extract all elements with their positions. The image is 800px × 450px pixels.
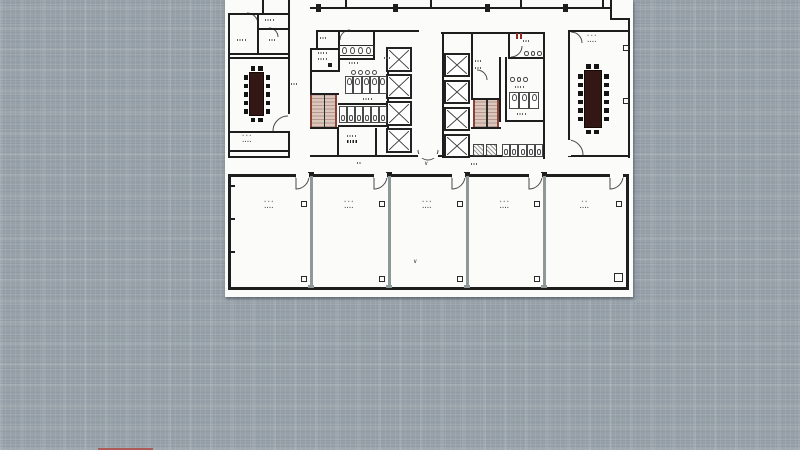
squat-fixture [357, 115, 361, 121]
door-opening [610, 173, 623, 178]
partition-wall [466, 176, 469, 288]
urinal [366, 47, 371, 54]
conference-table [249, 72, 264, 116]
elevator-x-icon [447, 137, 467, 155]
wall [610, 18, 630, 20]
partition-wall [388, 176, 391, 288]
elevator-x-icon [389, 50, 409, 69]
door-opening [418, 154, 438, 158]
wall [505, 120, 545, 122]
wall [393, 4, 398, 12]
chair [266, 92, 271, 97]
wall [262, 0, 264, 13]
column-mark [534, 276, 540, 282]
wall [316, 30, 419, 32]
door-opening [296, 173, 309, 178]
wall [568, 155, 630, 157]
door-opening [568, 140, 571, 156]
wall [228, 53, 290, 55]
wall [520, 0, 522, 8]
wall [316, 30, 318, 50]
annotation-text [320, 37, 327, 39]
chair [586, 64, 591, 69]
toilet [522, 94, 527, 101]
desktop-background: ∙∙∙ ∙∙∙∙ ∙∙∙ ∙∙∙∙ ∨ ∨ ∙∙∙∙∙∙∙∙∙∙∙∙∙∙∙∙∙∙… [0, 0, 800, 450]
column-mark [623, 98, 629, 104]
chair [578, 108, 583, 113]
shaft [473, 144, 484, 156]
elevator-shaft [386, 101, 412, 126]
chair [604, 74, 609, 79]
squat-fixture [373, 115, 377, 121]
shaft [486, 144, 497, 156]
room-label: ∙∙∙∙ [332, 206, 366, 212]
chair [578, 100, 583, 105]
annotation-text [515, 86, 524, 88]
wall [228, 287, 628, 290]
annotation-text [269, 39, 276, 41]
column-mark [457, 201, 463, 207]
squat-fixture [381, 115, 385, 121]
elevator-shaft [444, 107, 470, 131]
room-label: ∙∙∙∙ [230, 140, 264, 145]
column-mark [386, 285, 392, 288]
toilet [347, 78, 352, 85]
wall [485, 4, 490, 12]
wall [543, 32, 545, 159]
wall [508, 57, 545, 59]
chair [604, 91, 609, 96]
direction-mark: ∨ [424, 161, 428, 167]
sink [358, 70, 363, 75]
toilet [532, 94, 537, 101]
wall [626, 174, 629, 290]
toilet [355, 78, 360, 85]
wall [257, 13, 259, 55]
wall [228, 218, 235, 220]
elevator-x-icon [447, 56, 467, 74]
chair [244, 92, 249, 97]
elevator-x-icon [389, 104, 409, 123]
chair [258, 66, 263, 71]
chair [604, 117, 609, 122]
room-label: ∙∙∙∙ [568, 206, 602, 212]
wall [338, 58, 375, 60]
wall [228, 131, 288, 133]
wall [228, 174, 231, 290]
partition-wall [310, 176, 313, 288]
room-label: ∙∙∙∙ [575, 40, 609, 45]
fire-door-mark [516, 33, 518, 39]
elevator-shaft [444, 134, 470, 158]
wall [228, 156, 290, 158]
elevator-x-icon [447, 83, 467, 101]
room-label: ∙∙∙∙ [488, 206, 522, 212]
sink [531, 51, 536, 56]
wall [228, 57, 288, 59]
elevator-x-icon [389, 77, 409, 96]
chair [244, 109, 249, 114]
staircase [310, 95, 337, 127]
chair [578, 117, 583, 122]
column-mark [616, 201, 622, 207]
wall [316, 48, 340, 50]
urinal [350, 47, 355, 54]
column-mark [379, 201, 385, 207]
wall [610, 0, 612, 18]
wall [568, 30, 630, 32]
toilet [512, 94, 517, 101]
urinal [358, 47, 363, 54]
column-mark [308, 285, 314, 288]
sink [524, 51, 529, 56]
sink [523, 77, 528, 82]
chair [604, 100, 609, 105]
door-opening [288, 114, 291, 131]
annotation-text [384, 57, 392, 59]
room-label: ∙∙∙∙ [410, 206, 444, 212]
squat-fixture [504, 149, 508, 155]
toilet [380, 78, 385, 85]
chair [244, 84, 249, 89]
column-mark [301, 276, 307, 282]
chair [251, 66, 256, 71]
wall [338, 125, 389, 127]
annotation-text [265, 19, 274, 21]
wall [602, 0, 604, 7]
column-mark [614, 273, 623, 282]
chair [604, 108, 609, 113]
wall [257, 28, 290, 30]
sink [351, 70, 356, 75]
toilet [364, 78, 369, 85]
elevator-shaft [444, 53, 470, 77]
wall [310, 70, 340, 72]
squat-fixture [365, 115, 369, 121]
chair [266, 84, 271, 89]
annotation-text [237, 39, 247, 41]
door-opening [374, 173, 387, 178]
wall [345, 0, 347, 8]
chair [604, 83, 609, 88]
sink [517, 77, 522, 82]
wall [628, 18, 630, 158]
partition-wall [543, 176, 546, 288]
annotation-text [357, 162, 362, 164]
chair [251, 118, 256, 123]
elevator-shaft [386, 128, 412, 153]
chair [244, 75, 249, 80]
annotation-text [363, 98, 372, 100]
annotation-text [523, 40, 531, 42]
wall [499, 57, 501, 122]
fire-door-mark [520, 33, 522, 39]
elevator-shaft [386, 47, 412, 72]
wall [505, 57, 507, 122]
wall [430, 0, 432, 8]
wall [471, 32, 473, 100]
chair [586, 130, 591, 135]
chair [266, 75, 271, 80]
annotation-text [318, 58, 327, 60]
wall [228, 150, 288, 152]
chair [578, 74, 583, 79]
floor-plan-canvas[interactable]: ∙∙∙ ∙∙∙∙ ∙∙∙ ∙∙∙∙ ∨ ∨ ∙∙∙∙∙∙∙∙∙∙∙∙∙∙∙∙∙∙… [225, 0, 633, 297]
wall [228, 13, 230, 158]
wall [288, 0, 290, 158]
elevator-x-icon [389, 131, 409, 150]
column-mark [457, 276, 463, 282]
wall [228, 185, 235, 187]
wall [563, 4, 568, 12]
annotation-text [475, 67, 481, 69]
wall [441, 32, 545, 34]
wall [375, 128, 377, 157]
squat-fixture [349, 115, 353, 121]
wall [471, 127, 501, 129]
annotation-text [291, 83, 298, 85]
chair [258, 118, 263, 123]
squat-fixture [521, 149, 525, 155]
door-opening [452, 173, 465, 178]
wall [328, 63, 332, 67]
squat-fixture [529, 149, 533, 155]
urinal [342, 47, 347, 54]
chair [266, 109, 271, 114]
column-mark [534, 201, 540, 207]
wall [228, 13, 290, 15]
staircase [473, 100, 499, 127]
wall [228, 251, 235, 253]
door-opening [529, 173, 542, 178]
wall [568, 30, 570, 157]
toilet [372, 78, 377, 85]
column-mark [379, 276, 385, 282]
wall [337, 128, 339, 157]
annotation-text [347, 135, 357, 137]
chair [578, 91, 583, 96]
wall [310, 155, 418, 157]
door-swing-arcs [225, 0, 633, 297]
direction-mark: ∨ [413, 259, 417, 265]
annotation-text [517, 113, 526, 115]
column-mark [464, 285, 470, 288]
wall [316, 4, 321, 12]
wall [508, 32, 510, 59]
annotation-text [349, 62, 358, 64]
squat-fixture [537, 149, 541, 155]
column-mark [541, 285, 547, 288]
chair [266, 101, 271, 106]
wall [338, 103, 389, 105]
wall [228, 174, 628, 177]
sink [365, 70, 370, 75]
chair [244, 101, 249, 106]
annotation-text [471, 163, 478, 165]
sink [537, 51, 542, 56]
elevator-shaft [444, 80, 470, 104]
annotation-text [318, 52, 327, 54]
elevator-shaft [386, 74, 412, 99]
annotation-text [347, 140, 357, 143]
room-label: ∙∙∙∙ [252, 206, 286, 212]
column-mark [301, 201, 307, 207]
sink [510, 77, 515, 82]
sink [372, 70, 377, 75]
chair [594, 64, 599, 69]
conference-table [584, 70, 602, 128]
squat-fixture [341, 115, 345, 121]
annotation-text [475, 60, 481, 62]
elevator-x-icon [447, 110, 467, 128]
chair [578, 83, 583, 88]
column-mark [623, 45, 629, 51]
wall [310, 127, 339, 129]
chair [594, 130, 599, 135]
